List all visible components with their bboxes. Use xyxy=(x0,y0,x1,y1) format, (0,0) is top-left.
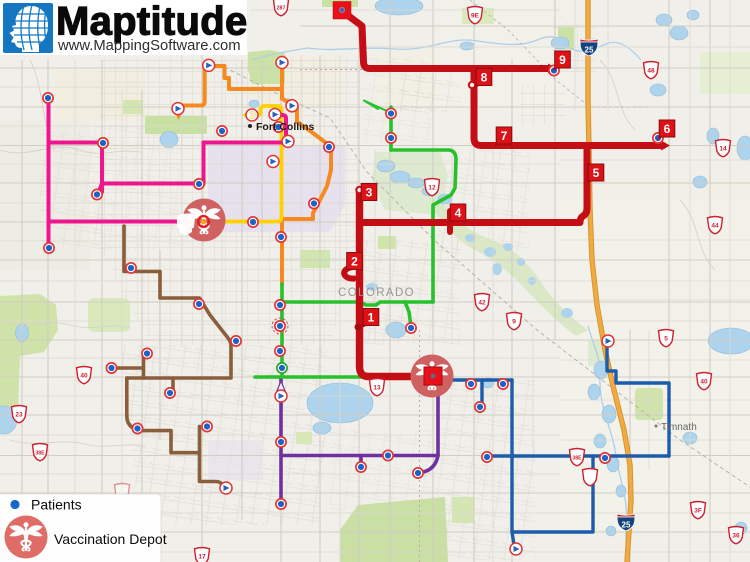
svg-text:42: 42 xyxy=(478,299,486,306)
svg-text:9: 9 xyxy=(559,53,566,67)
svg-text:6: 6 xyxy=(664,122,671,136)
svg-text:38E: 38E xyxy=(35,450,45,456)
svg-text:3F: 3F xyxy=(694,507,702,514)
svg-text:5: 5 xyxy=(593,166,600,180)
svg-text:7: 7 xyxy=(501,129,508,143)
svg-text:4: 4 xyxy=(455,206,462,220)
svg-text:36: 36 xyxy=(732,532,740,539)
svg-text:23: 23 xyxy=(15,411,23,418)
svg-text:3: 3 xyxy=(366,185,373,199)
svg-text:Fort Collins: Fort Collins xyxy=(256,121,314,133)
svg-text:5: 5 xyxy=(664,335,668,342)
svg-text:9: 9 xyxy=(512,318,516,325)
svg-text:44: 44 xyxy=(711,222,719,229)
svg-text:8: 8 xyxy=(481,70,488,84)
svg-text:13: 13 xyxy=(373,384,381,391)
svg-text:Timnath: Timnath xyxy=(661,422,697,433)
svg-text:48: 48 xyxy=(647,67,655,74)
svg-text:40: 40 xyxy=(700,378,708,385)
svg-text:40: 40 xyxy=(80,372,88,379)
svg-text:2: 2 xyxy=(351,254,358,268)
svg-text:www.MappingSoftware.com: www.MappingSoftware.com xyxy=(57,38,241,54)
svg-text:14: 14 xyxy=(719,145,727,152)
svg-text:Patients: Patients xyxy=(31,497,82,513)
svg-text:287: 287 xyxy=(277,5,286,11)
svg-text:38E: 38E xyxy=(572,455,582,461)
svg-text:12: 12 xyxy=(428,184,436,191)
svg-text:9E: 9E xyxy=(471,12,480,19)
svg-text:Maptitude: Maptitude xyxy=(56,0,248,44)
svg-text:1: 1 xyxy=(368,310,375,324)
svg-text:COLORADO: COLORADO xyxy=(338,287,415,299)
svg-text:17: 17 xyxy=(198,553,206,560)
svg-text:Vaccination Depot: Vaccination Depot xyxy=(54,531,167,547)
